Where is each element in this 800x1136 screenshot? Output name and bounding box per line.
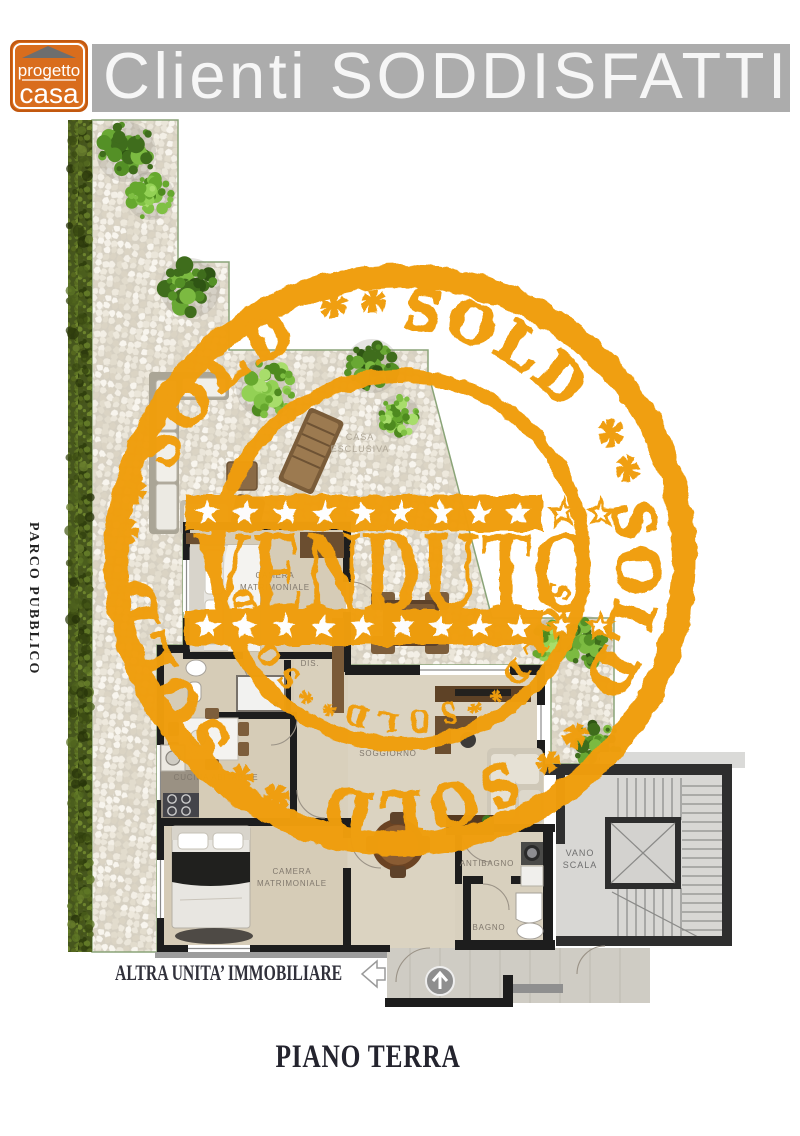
- svg-text:CAMERA: CAMERA: [272, 867, 311, 876]
- svg-text:BAGNO: BAGNO: [473, 923, 506, 932]
- svg-text:Clienti SODDISFATTI: Clienti SODDISFATTI: [103, 39, 790, 112]
- svg-text:PIANO TERRA: PIANO TERRA: [275, 1039, 460, 1075]
- svg-text:casa: casa: [19, 78, 79, 109]
- svg-text:ANTIBAGNO: ANTIBAGNO: [460, 859, 514, 868]
- svg-text:MATRIMONIALE: MATRIMONIALE: [257, 879, 327, 888]
- svg-text:VANO: VANO: [566, 848, 595, 858]
- svg-text:DIS.: DIS.: [301, 659, 320, 668]
- svg-text:CASA: CASA: [346, 432, 375, 442]
- svg-text:ALTRA UNITA’ IMMOBILIARE: ALTRA UNITA’ IMMOBILIARE: [115, 962, 342, 986]
- svg-text:ESCLUSIVA: ESCLUSIVA: [331, 444, 390, 454]
- svg-text:VENDUTO: VENDUTO: [193, 506, 595, 637]
- svg-text:SCALA: SCALA: [563, 860, 598, 870]
- svg-text:PARCO PUBBLICO: PARCO PUBBLICO: [26, 522, 41, 675]
